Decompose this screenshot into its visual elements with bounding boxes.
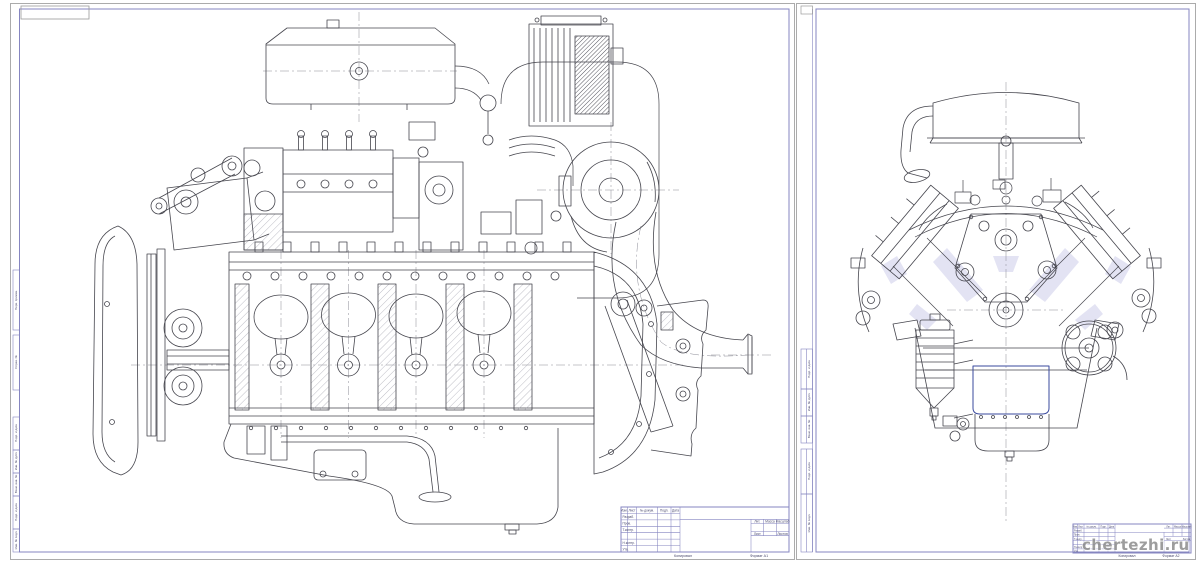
oil-pan — [943, 414, 1049, 461]
engine-front-view-drawing — [851, 82, 1161, 522]
titleblock-role-label: Утв. — [1074, 551, 1079, 553]
flywheel-housing — [594, 252, 708, 474]
footer-format-label: Формат A2 — [1162, 554, 1179, 558]
titleblock-lit-label: Масштаб — [1182, 526, 1193, 528]
air-cleaner — [901, 93, 1085, 185]
margin-stamp-labels: Подп. и дата Инв. № дубл. Взам. инв. № П… — [807, 360, 811, 533]
titleblock-lit-label: Лит. — [1166, 526, 1171, 528]
intake-duct — [455, 62, 659, 298]
titleblock-header-label: Лист — [629, 509, 636, 513]
titleblock-header-label: Изм. — [621, 509, 628, 513]
oil-pan — [224, 424, 558, 534]
top-left-designation-box — [21, 6, 89, 19]
titleblock-sheet-label: Лист — [754, 532, 761, 536]
margin-label: Инв. № подл. — [807, 513, 811, 532]
margin-label: Подп. и дата — [14, 424, 18, 442]
margin-label: Инв. № подл. — [14, 530, 18, 549]
titleblock-header-label: Дата — [672, 509, 679, 513]
titleblock-header-label: Подп. — [1100, 526, 1106, 528]
titleblock-lit-label: Масса — [1174, 526, 1182, 528]
titleblock-role-label: Т.контр. — [623, 528, 635, 532]
sheet-frame — [813, 9, 1190, 552]
titleblock-role-label: Пров. — [1074, 535, 1080, 537]
titleblock-lit-label: Масштаб — [776, 520, 790, 524]
oil-pan-upper — [973, 366, 1049, 414]
valve-cover — [266, 20, 455, 110]
titleblock-role-label: Н.контр. — [623, 541, 635, 545]
footer-copy-label: Копировал — [1119, 554, 1136, 558]
titleblock-role-label: Разраб. — [623, 515, 635, 519]
title-block-labels: Изм. Лист № докум. Подп. Дата Разраб. Пр… — [621, 509, 790, 552]
margin-label: Инв. № дубл. — [14, 452, 18, 471]
titleblock-sheet-label: Листов — [777, 532, 788, 536]
titleblock-header-label: № докум. — [1086, 525, 1096, 528]
margin-stamp-labels: Перв. примен. Справ. № Подп. и дата Инв.… — [14, 290, 18, 549]
margin-label: Подп. и дата — [807, 462, 811, 480]
top-left-designation-box — [801, 6, 813, 14]
drawing-sheet-a1: Перв. примен. Справ. № Подп. и дата Инв.… — [10, 3, 795, 560]
margin-label: Подп. и дата — [807, 360, 811, 378]
titleblock-header-label: Подп. — [660, 509, 669, 513]
exhaust-manifold-left — [851, 248, 880, 332]
drawing-sheet-a2: Подп. и дата Инв. № дубл. Взам. инв. № П… — [796, 3, 1196, 560]
margin-label: Взам. инв. № — [807, 419, 811, 438]
margin-label: Инв. № дубл. — [807, 393, 811, 412]
sheet-frame — [20, 9, 790, 552]
cylinder-head — [409, 95, 561, 254]
cylinder-block — [229, 242, 594, 424]
turbocharger — [529, 16, 623, 126]
exhaust-manifold-right — [1132, 248, 1161, 332]
titleblock-header-label: Дата — [1109, 526, 1115, 528]
footer-format-label: Формат A1 — [750, 554, 768, 558]
oil-filter — [916, 314, 973, 420]
margin-label: Перв. примен. — [14, 290, 18, 310]
margin-label: Взам. инв. № — [14, 474, 18, 493]
titleblock-role-label: Утв. — [623, 548, 629, 552]
sheet-a1-canvas: Перв. примен. Справ. № Подп. и дата Инв.… — [11, 4, 794, 559]
margin-label: Подп. и дата — [14, 503, 18, 521]
titleblock-lit-label: Лит. — [754, 520, 760, 524]
site-watermark: chertezhi.ru — [1082, 536, 1190, 554]
engine-side-view-drawing — [93, 12, 773, 534]
titleblock-header-label: № докум. — [640, 509, 654, 513]
title-block — [621, 507, 789, 552]
margin-label: Справ. № — [14, 354, 18, 368]
turbine-scroll — [559, 142, 659, 252]
sheet-footer: Копировал Формат A2 — [1119, 554, 1180, 558]
titleblock-lit-label: Масса — [765, 520, 775, 524]
footer-copy-label: Копировал — [674, 554, 692, 558]
sheet-footer: Копировал Формат A1 — [674, 554, 768, 558]
injection-pump — [244, 131, 419, 251]
titleblock-role-label: Пров. — [623, 522, 632, 526]
titleblock-role-label: Разраб. — [1074, 531, 1083, 533]
sheet-a2-canvas: Подп. и дата Инв. № дубл. Взам. инв. № П… — [797, 4, 1195, 559]
